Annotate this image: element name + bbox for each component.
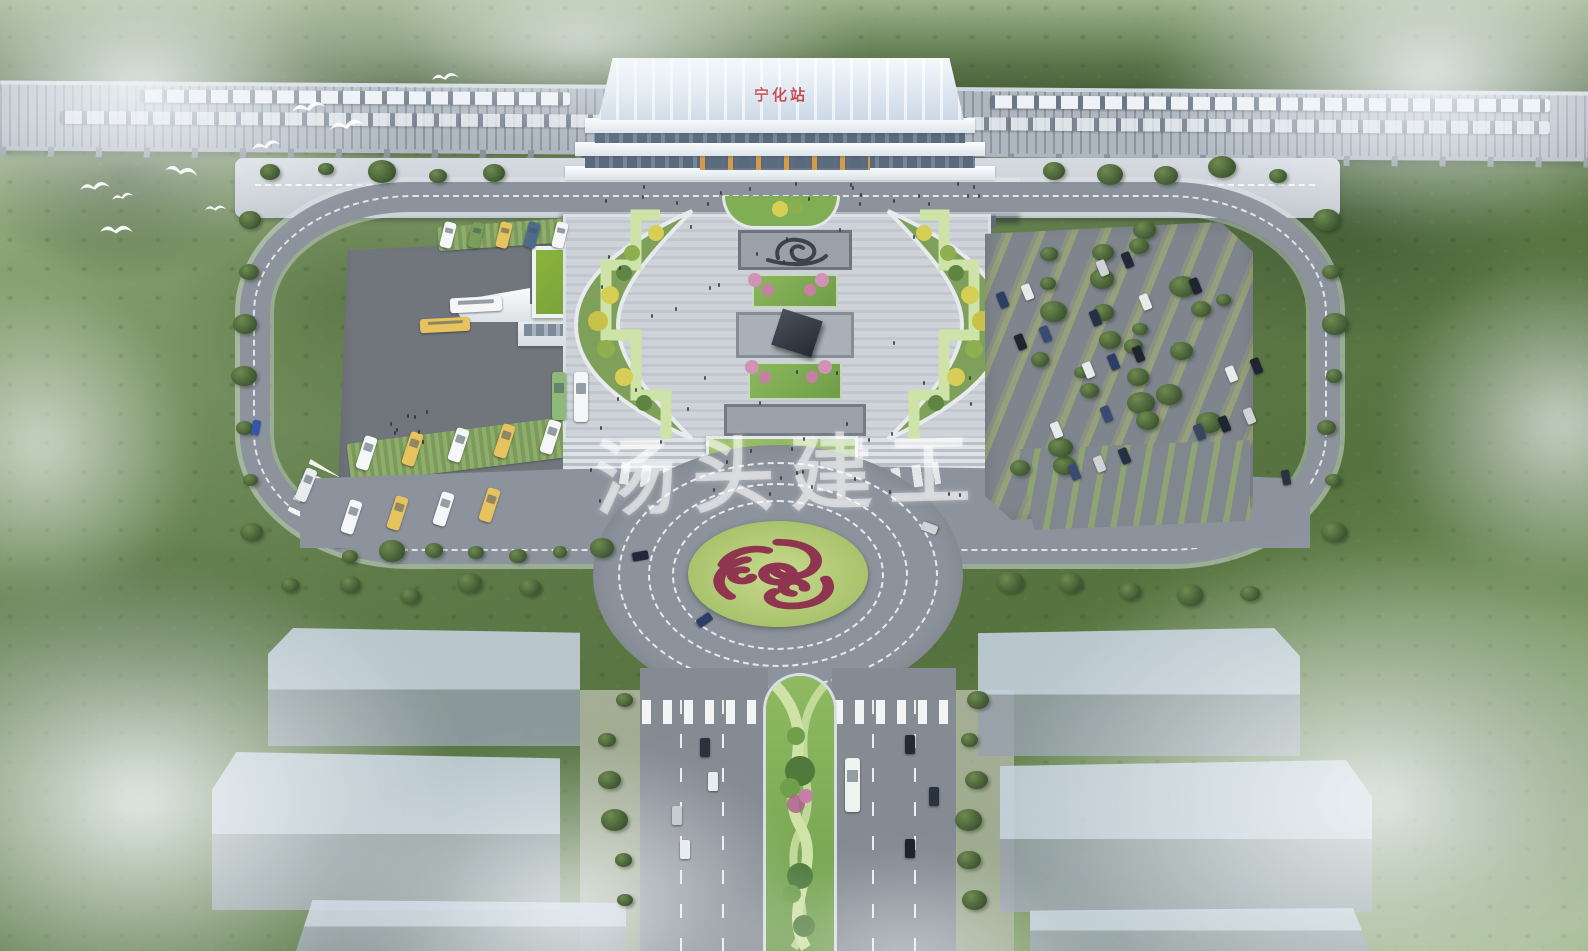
- median-s-path: [766, 676, 834, 951]
- pedestrian: [854, 477, 856, 481]
- tree: [1136, 411, 1159, 429]
- boulevard-car: [700, 738, 710, 757]
- boulevard-median: [766, 676, 834, 951]
- pedestrian: [839, 228, 841, 232]
- massing-building-left-2: [212, 752, 560, 910]
- bird-icon: [291, 100, 326, 113]
- tree: [318, 163, 334, 175]
- pedestrian: [619, 266, 621, 270]
- tree: [1031, 352, 1050, 367]
- massing-building-right-3: [1030, 908, 1370, 951]
- tree: [260, 164, 280, 180]
- pedestrian: [852, 186, 854, 190]
- pedestrian: [750, 449, 752, 453]
- pedestrian: [836, 371, 838, 375]
- pedestrian: [707, 202, 709, 206]
- lane-dash-l2: [722, 700, 724, 951]
- roundabout-cloud-motif: [688, 521, 868, 627]
- lane-dash-r1: [872, 700, 874, 951]
- station-entrance-columns: [700, 154, 870, 170]
- tree: [243, 474, 258, 486]
- bird-icon: [111, 192, 134, 201]
- bird-icon: [79, 181, 110, 191]
- tree: [1132, 323, 1148, 335]
- bird-icon: [205, 205, 226, 211]
- tree: [1322, 313, 1349, 334]
- pedestrian: [969, 376, 971, 380]
- tree: [379, 540, 406, 561]
- pedestrian: [600, 426, 602, 430]
- massing-building-right-1: [978, 628, 1300, 756]
- pedestrian: [396, 428, 398, 432]
- watermark-text: 汤头建工: [574, 402, 1007, 532]
- tree: [957, 851, 981, 870]
- tree: [965, 771, 988, 789]
- tree: [955, 809, 982, 830]
- crosswalk-boulevard-left: [642, 700, 768, 724]
- tree: [519, 579, 540, 596]
- tree: [996, 572, 1023, 594]
- massing-building-right-2: [1000, 760, 1372, 912]
- boulevard-car: [708, 772, 718, 791]
- pedestrian: [651, 314, 653, 318]
- tree: [509, 549, 526, 563]
- tree: [457, 573, 482, 593]
- tree: [1156, 384, 1182, 405]
- pedestrian: [608, 255, 610, 259]
- station-glass-band-upper: [595, 132, 965, 143]
- pedestrian: [923, 381, 925, 385]
- pedestrian: [704, 376, 706, 380]
- crosswalk-boulevard-right: [834, 700, 956, 724]
- tree: [1133, 221, 1156, 239]
- station-mid-slab: [575, 142, 985, 156]
- tree: [1321, 522, 1346, 542]
- tree: [240, 523, 263, 542]
- pedestrian: [967, 194, 969, 198]
- terminal-bus: [420, 317, 471, 334]
- tree: [425, 543, 444, 558]
- tree: [400, 588, 420, 604]
- pedestrian: [414, 415, 416, 419]
- tree: [1154, 166, 1178, 185]
- pedestrian: [928, 202, 930, 206]
- pedestrian: [970, 402, 972, 406]
- tree: [961, 733, 978, 746]
- tree: [233, 314, 257, 334]
- lane-dash-l1: [680, 700, 682, 951]
- pedestrian: [918, 194, 920, 198]
- roundabout-island: [688, 521, 868, 627]
- terminal-bus: [574, 372, 588, 422]
- pedestrian: [426, 410, 428, 414]
- tree: [598, 771, 620, 789]
- tree: [483, 164, 505, 182]
- bird-icon: [165, 164, 199, 178]
- boulevard-bus: [845, 758, 860, 812]
- boulevard-car: [680, 840, 690, 859]
- tree: [598, 733, 616, 747]
- tree: [231, 366, 257, 387]
- tree: [340, 576, 361, 593]
- pedestrian: [859, 202, 861, 206]
- tree: [967, 691, 989, 708]
- pedestrian: [868, 438, 870, 442]
- tree: [1322, 265, 1341, 280]
- boulevard-car: [905, 735, 915, 754]
- tree: [616, 693, 633, 707]
- tree: [429, 169, 447, 183]
- pedestrian: [783, 260, 785, 264]
- boulevard-car: [929, 787, 939, 806]
- tree: [962, 890, 988, 910]
- tree: [601, 809, 628, 830]
- pedestrian: [676, 201, 678, 205]
- boulevard-car: [672, 806, 682, 825]
- tree: [1177, 584, 1204, 605]
- pedestrian: [635, 388, 637, 392]
- tree: [1216, 294, 1231, 306]
- station-upper-slab: [585, 118, 975, 133]
- pedestrian: [889, 490, 891, 494]
- pedestrian: [599, 499, 601, 503]
- pedestrian: [660, 440, 662, 444]
- pedestrian: [407, 414, 409, 418]
- pedestrian: [978, 194, 980, 198]
- tree: [1170, 342, 1192, 360]
- terminal-bus: [552, 372, 566, 420]
- bird-icon: [431, 72, 458, 81]
- aerial-render-scene: 宁化站: [0, 0, 1588, 951]
- pedestrian: [687, 407, 689, 411]
- pedestrian: [780, 476, 782, 480]
- massing-building-left-3: [296, 900, 626, 951]
- pedestrian: [802, 470, 804, 474]
- pedestrian: [893, 199, 895, 203]
- terminal-bus: [450, 296, 503, 314]
- tree: [1127, 368, 1150, 386]
- tree: [1240, 586, 1259, 602]
- tree: [1313, 209, 1339, 230]
- pedestrian: [957, 182, 959, 186]
- tree: [1058, 573, 1083, 593]
- tree: [368, 160, 396, 182]
- tree: [615, 853, 632, 867]
- tree: [1269, 169, 1287, 183]
- pedestrian: [675, 307, 677, 311]
- fog-right: [1380, 260, 1588, 590]
- tree: [1208, 156, 1236, 178]
- pedestrian: [605, 199, 607, 203]
- massing-building-left-1: [268, 628, 580, 746]
- bird-icon: [251, 139, 281, 151]
- tree: [468, 546, 483, 558]
- pedestrian: [795, 182, 797, 186]
- tree: [1119, 583, 1140, 600]
- pedestrian: [713, 488, 715, 492]
- pedestrian: [601, 285, 603, 289]
- boulevard-car: [905, 839, 915, 858]
- bird-icon: [329, 118, 364, 131]
- pedestrian: [643, 185, 645, 189]
- pedestrian: [959, 493, 961, 497]
- pedestrian: [590, 468, 592, 472]
- garden-trees: [588, 200, 992, 411]
- tree: [281, 578, 298, 592]
- bird-icon: [100, 226, 133, 234]
- pedestrian: [642, 195, 644, 199]
- tree: [553, 546, 568, 558]
- tree: [590, 538, 615, 558]
- fog-left: [0, 280, 200, 610]
- tree: [342, 550, 358, 563]
- tree: [1325, 474, 1341, 487]
- station-sign-text: 宁化站: [598, 84, 964, 105]
- tree: [1326, 369, 1343, 382]
